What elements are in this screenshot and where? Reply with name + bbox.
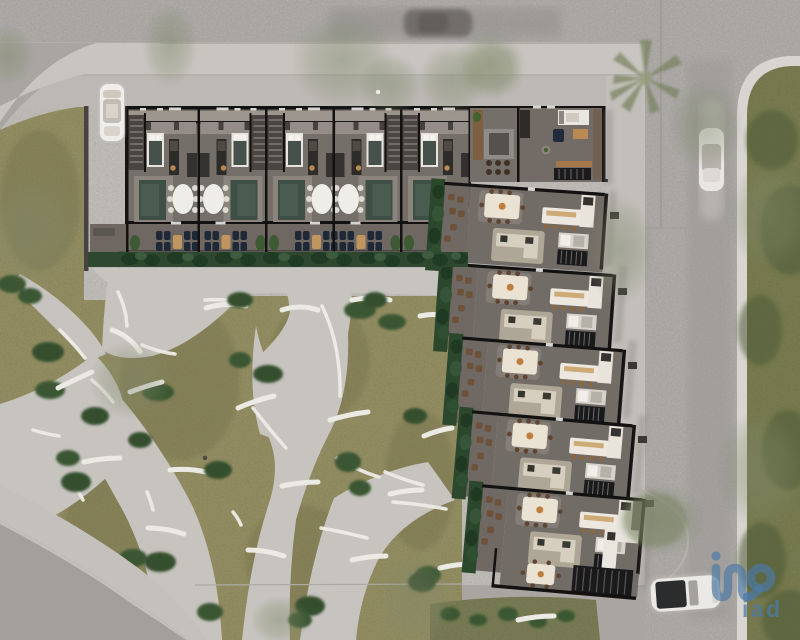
svg-text:iad: iad [742,596,783,622]
